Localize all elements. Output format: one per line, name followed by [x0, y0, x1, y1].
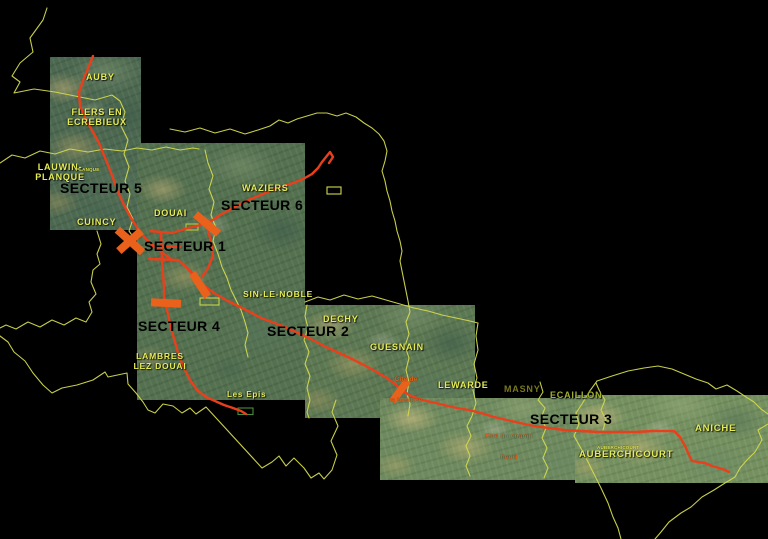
sector-label-4: SECTEUR 4 — [138, 319, 220, 335]
commune-boundary-line — [0, 147, 199, 163]
commune-label-lambres-lez-douai: LAMBRES LEZ DOUAI — [133, 352, 187, 371]
commune-boundary-line — [466, 416, 472, 476]
commune-boundary-line — [597, 366, 768, 414]
commune-label-line: ECREBIEUX — [66, 117, 128, 127]
commune-label-aniche: ANICHE — [695, 424, 736, 435]
commune-label-masny: MASNY — [504, 384, 541, 394]
commune-label-auberchicourt: AUBERCHICOURT — [579, 450, 673, 461]
tram-route-line-douai-loop — [172, 224, 207, 233]
sector-break-marker — [151, 298, 181, 308]
sector-label-6: SECTEUR 6 — [221, 198, 303, 214]
commune-label-auby: AUBY — [86, 72, 115, 82]
cite-label-balance: Cité de la balance — [384, 361, 428, 419]
commune-label-line: FLERS EN — [66, 107, 128, 117]
commune-label-waziers: WAZIERS — [242, 183, 289, 193]
commune-label-lauwin-planque-small: PLANQUE — [76, 167, 99, 172]
commune-label-flers-en-ecrebieux: FLERS EN ECREBIEUX — [66, 107, 128, 127]
commune-boundary-line — [655, 424, 768, 539]
sector-label-2: SECTEUR 2 — [267, 324, 349, 340]
commune-label-ecaillon: ECAILLON — [550, 390, 602, 400]
tram-route-line-secteur2-3 — [203, 285, 729, 472]
cite-label-line: Cité du champ — [483, 433, 535, 440]
commune-boundary-line — [538, 382, 548, 478]
commune-label-cuincy: CUINCY — [77, 217, 116, 227]
tram-route-line-douai-loop — [149, 259, 178, 260]
cite-label-champ-fleuri: Cité du champ fleuri — [483, 418, 535, 476]
sector-label-1: SECTEUR 1 — [144, 239, 226, 255]
site-outline-marker — [200, 298, 219, 305]
place-label-les-epis: Les Epis — [227, 391, 266, 400]
commune-label-lewarde: LEWARDE — [438, 380, 489, 390]
map-canvas: AUBY FLERS EN ECREBIEUX LAUWIN- PLANQUE … — [0, 0, 768, 539]
sector-label-5: SECTEUR 5 — [60, 181, 142, 197]
sector-label-3: SECTEUR 3 — [530, 412, 612, 428]
site-outline-marker — [327, 187, 341, 194]
commune-label-line: LEZ DOUAI — [133, 362, 187, 372]
commune-boundary-line — [0, 231, 101, 329]
commune-label-sin-le-noble: SIN-LE-NOBLE — [243, 290, 313, 300]
commune-label-guesnain: GUESNAIN — [370, 342, 424, 352]
sector-break-marker — [189, 271, 211, 299]
commune-boundary-line — [304, 305, 310, 418]
commune-label-douai: DOUAI — [154, 208, 187, 218]
cite-label-line: la balance — [384, 397, 428, 404]
cite-label-line: fleuri — [483, 454, 535, 461]
cite-label-line: Cité de — [384, 376, 428, 383]
